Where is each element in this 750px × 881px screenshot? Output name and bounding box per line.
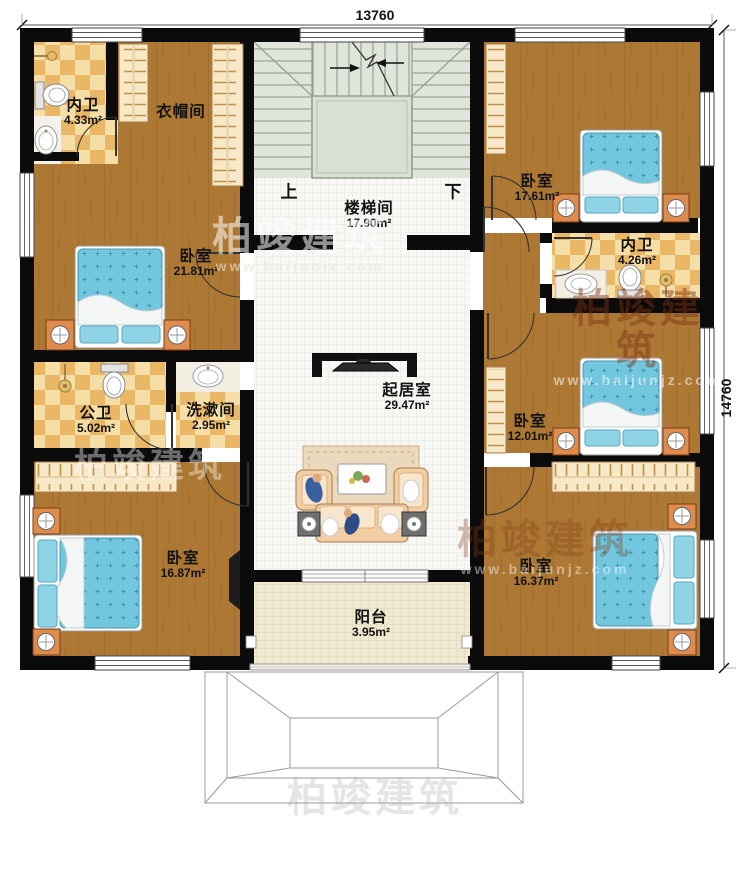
- room-label-stairwell: 楼梯间 17.90m²: [344, 200, 394, 230]
- tv-icon: [229, 550, 240, 610]
- wardrobe-icon: [119, 44, 148, 122]
- sofa-set: [296, 446, 428, 542]
- bed-icon: [75, 246, 165, 348]
- room-label-public-bath: 公卫 5.02m²: [77, 405, 115, 435]
- sink-icon: [556, 270, 606, 298]
- dimension-top: 13760: [356, 7, 395, 23]
- nightstand-icon: [668, 504, 696, 529]
- nightstand-icon: [164, 320, 190, 350]
- room-label-bedroom-left: 卧室 21.81m²: [174, 248, 219, 278]
- wardrobe-icon: [486, 44, 506, 154]
- window: [300, 28, 424, 42]
- floor-hall-right: [483, 233, 540, 313]
- window: [700, 328, 714, 434]
- window: [700, 92, 714, 166]
- bed-icon: [34, 535, 142, 631]
- wardrobe-icon: [35, 462, 177, 492]
- window: [72, 28, 142, 42]
- bed-icon: [580, 358, 662, 455]
- sink-icon: [35, 126, 57, 154]
- room-label-bath-right: 内卫 4.26m²: [618, 237, 656, 267]
- title-block: 二层平面图 1:100 本层建筑面积: 177.93m² 层高: 3.3m: [0, 780, 750, 881]
- room-label-washroom: 洗漱间 2.95m²: [186, 402, 236, 432]
- room-label-balcony: 阳台 3.95m²: [352, 609, 390, 639]
- floor-passage: [333, 235, 407, 250]
- room-label-bedroom-br: 卧室 16.37m²: [514, 558, 559, 588]
- stairs-drawing: [254, 42, 470, 178]
- stair-down-label: 下: [445, 178, 462, 203]
- window: [612, 656, 660, 670]
- dimension-right: 14760: [718, 379, 734, 418]
- nightstand-icon: [553, 428, 579, 455]
- room-label-bedroom-mr: 卧室 12.01m²: [508, 413, 553, 443]
- sofa-icon: [316, 504, 408, 542]
- nightstand-icon: [33, 508, 60, 534]
- stair-up-label: 上: [281, 178, 298, 203]
- window: [20, 495, 34, 577]
- bed-icon: [580, 130, 662, 222]
- window: [700, 540, 714, 618]
- floor-plan-canvas: 13760 14760 内卫 4.33m² 衣帽间 楼梯间 17.90m² 上 …: [0, 0, 750, 881]
- bed-icon: [593, 531, 697, 629]
- window: [95, 656, 190, 670]
- nightstand-icon: [663, 428, 689, 455]
- side-table-icon: [402, 512, 426, 536]
- window: [515, 28, 625, 42]
- wardrobe-icon: [552, 462, 695, 492]
- nightstand-icon: [668, 630, 696, 655]
- room-label-living-room: 起居室 29.47m²: [382, 382, 432, 412]
- room-label-bedroom-tr: 卧室 17.61m²: [515, 173, 560, 203]
- wardrobe-icon: [486, 367, 506, 453]
- floor-plan-drawing: [0, 0, 750, 881]
- side-table-icon: [298, 512, 320, 536]
- room-label-bedroom-bl: 卧室 16.87m²: [161, 550, 206, 580]
- balcony-sliding-door: [302, 570, 428, 582]
- toilet-icon: [618, 265, 642, 298]
- nightstand-icon: [33, 629, 60, 655]
- room-label-cloakroom: 衣帽间: [156, 104, 206, 121]
- coffee-table-icon: [338, 464, 386, 494]
- sink-icon: [193, 365, 223, 387]
- room-label-bath-tl: 内卫 4.33m²: [64, 97, 102, 127]
- wardrobe-icon: [212, 44, 243, 186]
- nightstand-icon: [46, 320, 74, 350]
- window: [20, 173, 34, 257]
- nightstand-icon: [663, 194, 689, 222]
